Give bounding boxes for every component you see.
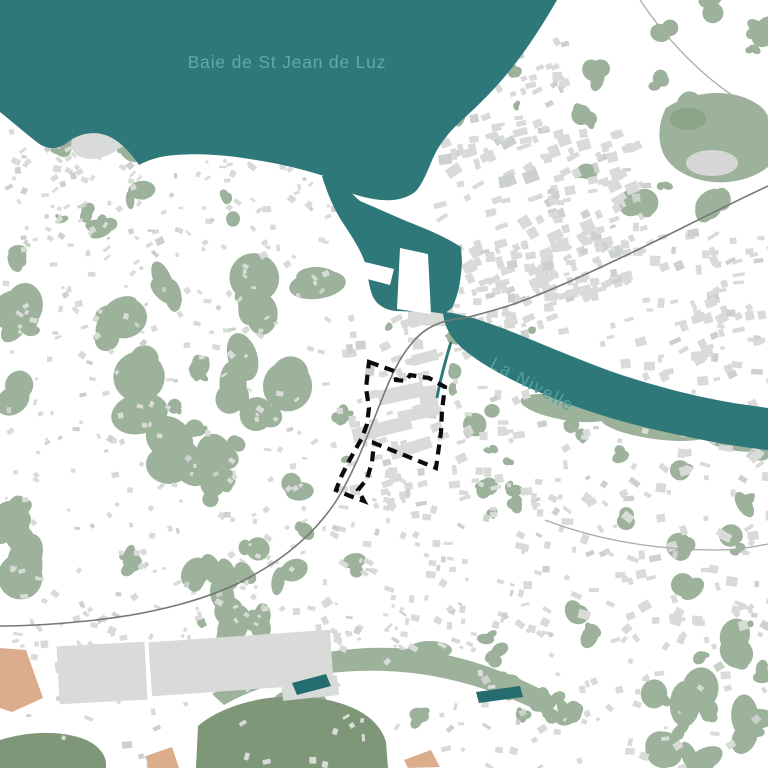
building (632, 700, 642, 708)
building (202, 205, 207, 210)
building (469, 114, 479, 124)
building (627, 658, 633, 664)
building (516, 530, 526, 539)
building (223, 512, 231, 518)
building (58, 306, 63, 313)
building (21, 155, 27, 159)
building (465, 412, 472, 416)
building (510, 583, 515, 587)
building (590, 278, 600, 286)
building (373, 502, 379, 509)
building (152, 725, 161, 732)
building (250, 593, 257, 600)
building (239, 585, 246, 591)
building (134, 236, 140, 241)
building (703, 516, 708, 522)
building (531, 502, 540, 507)
building (88, 272, 96, 277)
building (755, 460, 765, 468)
building (444, 542, 453, 545)
building (542, 262, 552, 271)
building (473, 478, 477, 482)
building (13, 632, 23, 636)
building (761, 687, 768, 694)
building (102, 245, 111, 252)
building (191, 591, 197, 594)
building (639, 225, 648, 232)
building (106, 236, 110, 240)
building (302, 457, 307, 460)
building (508, 294, 515, 303)
building (692, 616, 703, 626)
building (726, 576, 738, 587)
building (471, 289, 477, 297)
building (456, 439, 466, 445)
building (462, 559, 468, 565)
vegetation-patch (287, 267, 347, 303)
building (195, 615, 203, 620)
building (394, 626, 398, 630)
building (473, 298, 482, 305)
building (350, 522, 355, 528)
building (199, 355, 205, 359)
building (150, 325, 158, 333)
building (463, 194, 471, 202)
building (183, 627, 188, 632)
building (627, 555, 640, 564)
building (607, 335, 615, 340)
building (522, 313, 536, 324)
building (122, 165, 126, 169)
building (528, 74, 537, 82)
building (605, 600, 615, 608)
building (441, 745, 452, 752)
building (129, 170, 136, 177)
building (150, 708, 156, 715)
building (572, 546, 577, 552)
building (127, 487, 134, 494)
building (451, 637, 461, 644)
building (456, 180, 464, 187)
building (46, 235, 54, 242)
building (460, 618, 466, 624)
building (433, 201, 447, 209)
building (669, 337, 682, 346)
building (399, 531, 407, 539)
building (379, 341, 392, 353)
building (535, 64, 544, 71)
building (715, 582, 721, 591)
building (147, 229, 155, 232)
building (644, 362, 655, 371)
building (136, 200, 143, 207)
building (707, 231, 720, 241)
building (254, 585, 258, 590)
building (723, 684, 732, 692)
building (507, 483, 511, 488)
building (581, 719, 588, 725)
building (41, 193, 49, 197)
building (276, 244, 280, 251)
building (183, 701, 188, 707)
building (576, 138, 592, 152)
building (710, 331, 720, 340)
building (507, 259, 518, 269)
building (520, 87, 527, 95)
building (635, 689, 640, 695)
building (632, 633, 641, 642)
building (466, 641, 473, 647)
building (13, 470, 18, 475)
building (656, 514, 666, 523)
building (52, 331, 58, 334)
sand-patch (404, 750, 440, 768)
building (642, 183, 652, 189)
building (580, 533, 590, 545)
building (54, 335, 62, 340)
building (555, 671, 561, 676)
building (649, 554, 662, 562)
building (382, 459, 391, 467)
building (212, 344, 221, 351)
building (509, 747, 518, 756)
building (44, 440, 51, 446)
building (15, 167, 21, 174)
building (713, 661, 725, 672)
building (535, 479, 543, 485)
building (536, 320, 544, 330)
park-grove (670, 108, 706, 130)
building (406, 489, 411, 496)
building (642, 678, 650, 682)
building (495, 747, 503, 753)
building (232, 470, 236, 476)
building (661, 641, 670, 651)
building (585, 475, 591, 481)
building (513, 254, 519, 258)
building (729, 237, 736, 244)
building (484, 762, 493, 768)
building (548, 652, 554, 658)
building (20, 187, 28, 195)
building (498, 426, 507, 436)
building (252, 518, 257, 524)
building (720, 280, 728, 289)
building (145, 242, 153, 249)
building (173, 580, 182, 586)
building (230, 517, 235, 522)
building (457, 522, 465, 529)
building (659, 262, 671, 273)
building (590, 677, 599, 686)
building (727, 445, 734, 452)
building (561, 518, 573, 525)
building (287, 194, 297, 203)
building (227, 162, 233, 166)
building (531, 86, 542, 95)
building (570, 591, 582, 600)
building (601, 500, 609, 507)
building (514, 115, 523, 120)
building (136, 175, 143, 182)
building (19, 147, 27, 154)
building (454, 399, 462, 409)
building (400, 631, 408, 637)
building (350, 421, 360, 428)
building (315, 624, 322, 631)
building (473, 136, 479, 143)
building (174, 173, 177, 179)
building (140, 548, 147, 555)
building (363, 557, 374, 566)
building (615, 196, 622, 204)
building (57, 207, 62, 212)
building (678, 345, 689, 354)
building (149, 532, 156, 538)
building (355, 341, 366, 351)
building (106, 512, 113, 519)
building (262, 206, 271, 213)
building (664, 727, 668, 730)
building (289, 463, 296, 470)
building (147, 505, 154, 512)
building (374, 528, 380, 536)
bay-water (0, 0, 557, 200)
building (432, 540, 440, 547)
building (326, 204, 330, 208)
building (610, 637, 620, 644)
building (545, 100, 555, 108)
building (453, 378, 458, 384)
sand-patch (146, 747, 179, 768)
building (324, 213, 332, 219)
building (342, 349, 348, 358)
building (169, 192, 175, 198)
building (702, 250, 709, 258)
building (599, 340, 606, 347)
building (74, 527, 80, 530)
building (747, 531, 759, 541)
building (641, 248, 646, 253)
building (564, 185, 576, 196)
building (508, 437, 514, 443)
building (595, 226, 605, 234)
building (731, 361, 742, 369)
building (183, 342, 190, 349)
building (410, 614, 420, 622)
building (387, 491, 391, 496)
building (151, 250, 160, 259)
building (658, 463, 670, 474)
building (114, 502, 119, 507)
building (669, 614, 676, 621)
building (50, 411, 55, 416)
building (193, 321, 201, 327)
building (551, 507, 560, 516)
building (11, 157, 22, 166)
building (417, 468, 425, 476)
building (308, 182, 314, 188)
building (580, 209, 591, 219)
building (526, 226, 540, 240)
building (323, 579, 327, 585)
building (449, 567, 456, 572)
building (71, 306, 79, 314)
building (670, 299, 679, 304)
building (537, 764, 543, 768)
building (267, 476, 274, 482)
building (598, 285, 607, 292)
building (638, 550, 645, 559)
building (357, 398, 363, 404)
building (689, 300, 697, 311)
building (324, 316, 332, 324)
building (515, 719, 520, 725)
building (286, 426, 294, 432)
building (317, 349, 325, 354)
building (751, 369, 763, 375)
building (495, 123, 505, 127)
building (104, 449, 109, 453)
building (465, 577, 469, 581)
building (477, 386, 487, 390)
building (628, 234, 636, 242)
building (542, 606, 552, 614)
building (134, 550, 141, 557)
building (383, 613, 388, 617)
building (538, 278, 549, 287)
building (70, 172, 77, 180)
building (96, 433, 101, 439)
building (551, 190, 560, 199)
building (584, 680, 590, 688)
building (153, 570, 157, 573)
building (498, 420, 509, 425)
building (485, 251, 495, 262)
building (615, 686, 624, 694)
building (112, 438, 117, 443)
bay-label: Baie de St Jean de Luz (188, 52, 387, 72)
building (89, 376, 96, 381)
building (173, 379, 178, 383)
building (227, 551, 236, 559)
building (176, 253, 179, 257)
building (459, 494, 471, 501)
building (623, 495, 634, 501)
building (579, 128, 588, 138)
building (733, 280, 744, 284)
building (262, 506, 270, 514)
building (390, 595, 396, 601)
building (525, 81, 536, 89)
building (482, 723, 491, 730)
building (81, 324, 89, 329)
building (219, 165, 227, 168)
building (337, 408, 344, 414)
building (540, 617, 551, 627)
building (663, 368, 674, 376)
building (460, 747, 466, 753)
building (220, 244, 227, 250)
building (535, 532, 542, 538)
building (560, 76, 565, 79)
building (55, 156, 63, 164)
building (757, 631, 764, 637)
building (537, 509, 544, 517)
building (104, 254, 111, 260)
building (180, 633, 185, 638)
building (26, 714, 31, 717)
water-layer (0, 0, 768, 703)
building (438, 578, 448, 588)
building (485, 208, 497, 217)
building (621, 575, 627, 582)
building (138, 461, 144, 467)
building (348, 314, 355, 322)
building (383, 497, 388, 503)
building (652, 617, 660, 624)
building (478, 670, 484, 677)
building (388, 467, 397, 474)
building (483, 514, 491, 522)
building (40, 640, 48, 648)
building (201, 239, 208, 246)
building (157, 433, 163, 438)
building (84, 715, 94, 722)
building (403, 326, 408, 335)
building (229, 169, 237, 177)
building (657, 358, 662, 363)
building (4, 496, 8, 500)
building (753, 258, 763, 264)
building (30, 519, 37, 526)
building (398, 644, 403, 648)
park-clearing (686, 150, 738, 176)
building (338, 505, 348, 510)
building (745, 303, 753, 312)
building (255, 207, 262, 214)
building (57, 435, 63, 441)
building (580, 248, 587, 253)
building (102, 390, 110, 396)
building (412, 531, 420, 540)
building (511, 396, 521, 406)
building (30, 654, 38, 661)
building (74, 300, 83, 308)
building (20, 594, 28, 599)
forest-dark-center (196, 696, 388, 768)
building (404, 482, 413, 490)
building (409, 595, 415, 603)
building (589, 588, 599, 592)
building (335, 602, 338, 605)
building (195, 172, 200, 178)
building (670, 594, 678, 604)
building (72, 427, 79, 431)
building (386, 410, 393, 415)
building (310, 438, 319, 445)
building (609, 216, 620, 224)
building (633, 223, 639, 232)
building (596, 525, 604, 534)
building (563, 272, 570, 277)
building (562, 506, 572, 515)
building (297, 430, 302, 435)
building (391, 636, 400, 644)
building (251, 286, 256, 289)
building (535, 214, 545, 224)
building (523, 581, 532, 589)
